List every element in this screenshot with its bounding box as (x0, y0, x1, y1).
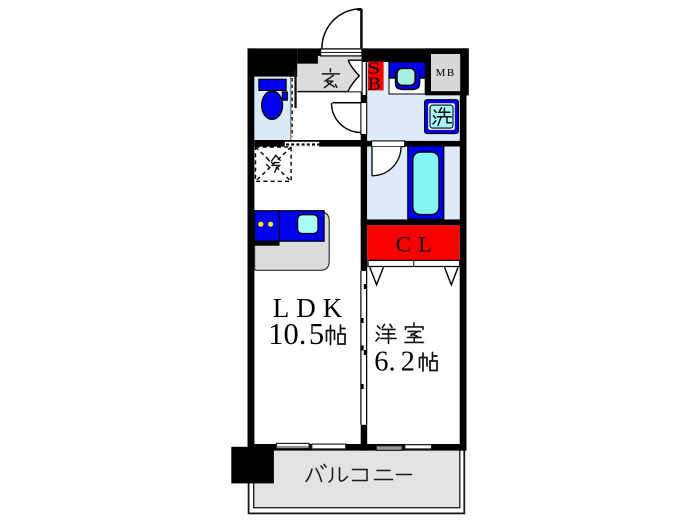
svg-text:B: B (368, 73, 381, 93)
svg-text:CL: CL (396, 232, 440, 257)
svg-text:6.2: 6.2 (374, 347, 415, 378)
svg-text:MB: MB (436, 67, 456, 79)
svg-text:10.5: 10.5 (268, 317, 324, 351)
